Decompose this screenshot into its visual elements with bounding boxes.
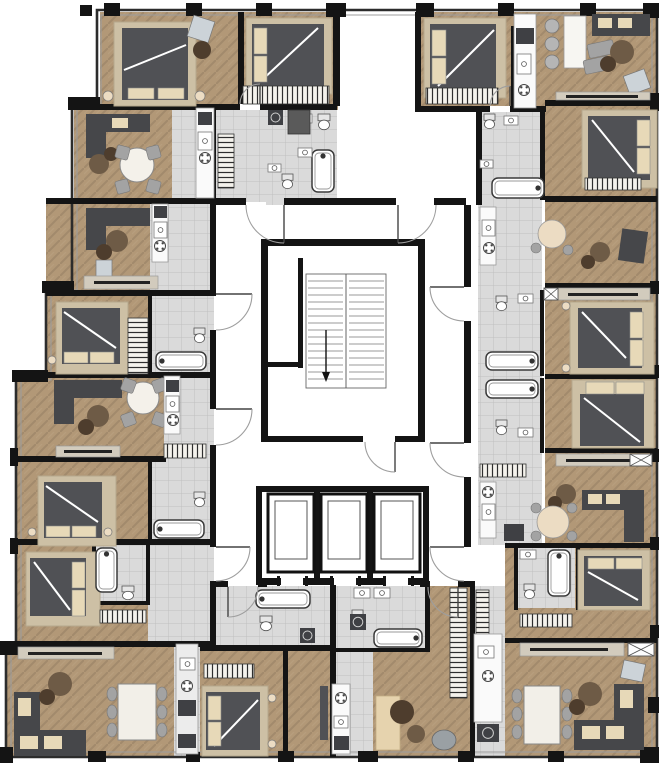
toilet-bowl (318, 120, 329, 130)
bar-stool (545, 19, 559, 33)
wall (216, 198, 246, 205)
chair (512, 725, 522, 739)
wall (464, 205, 471, 287)
pillow (637, 120, 650, 146)
door-gap (240, 104, 260, 110)
sink (268, 164, 281, 172)
wall (545, 100, 657, 106)
door-sill-tick (358, 576, 361, 586)
pouf (193, 41, 211, 59)
tub-faucet (320, 153, 325, 158)
tub-faucet (413, 635, 418, 640)
tub-faucet (157, 526, 162, 531)
sofa-cushion (588, 494, 602, 504)
burner (169, 416, 171, 418)
sofa-cushion (606, 494, 620, 504)
pillow (254, 56, 267, 82)
wall (545, 196, 657, 202)
chair (531, 531, 541, 541)
pouf (390, 700, 414, 724)
sink (480, 160, 493, 168)
toilet-bowl (194, 498, 204, 507)
pillar (256, 3, 272, 16)
bar-stool (545, 37, 559, 51)
stove (519, 85, 530, 96)
door-sill-tick (305, 576, 308, 586)
sink (504, 116, 518, 125)
elevator-door-gap (281, 578, 303, 585)
wall (46, 290, 216, 296)
burner (484, 672, 486, 674)
wardrobe (100, 610, 146, 623)
chair (107, 687, 117, 701)
kitchen-sink (198, 132, 212, 150)
burner (490, 494, 492, 496)
tub-faucet (556, 553, 561, 558)
burner (343, 694, 345, 696)
stove (483, 487, 494, 498)
sofa-cushion (112, 118, 128, 128)
bedside-table (28, 528, 36, 536)
wall (464, 321, 471, 443)
appliance (178, 700, 196, 716)
washer (350, 614, 366, 630)
sofa (86, 208, 106, 250)
pouf (96, 244, 112, 260)
door-sill-tick (411, 576, 414, 586)
wardrobe (128, 318, 148, 374)
wall (210, 445, 216, 547)
pillow (64, 352, 88, 363)
wardrobe (218, 134, 234, 188)
stove (182, 681, 193, 692)
door-sill-tick (383, 576, 386, 586)
kitchen-sink (154, 222, 167, 238)
wardrobe (426, 88, 498, 104)
pillar (68, 97, 100, 110)
core-wall (298, 258, 303, 368)
chair (531, 243, 541, 253)
floor-plan-canvas (0, 0, 665, 768)
bar-stool (545, 55, 559, 69)
burner (207, 160, 209, 162)
chair (562, 689, 572, 703)
chair (531, 503, 541, 513)
pillar (80, 5, 92, 16)
pillar (104, 3, 120, 16)
pillow (72, 562, 85, 588)
sink (298, 148, 312, 157)
sink (518, 428, 533, 437)
wardrobe (164, 444, 206, 458)
pillow (588, 558, 614, 569)
burner (337, 700, 339, 702)
wall (434, 198, 466, 205)
appliance (154, 206, 167, 218)
wall (505, 543, 657, 548)
burner (484, 494, 486, 496)
stove (168, 415, 179, 426)
toilet-bowl (194, 334, 204, 343)
wall (545, 448, 657, 453)
chair (563, 245, 573, 255)
pillow (128, 88, 154, 99)
pillow (630, 312, 643, 338)
kitchen-sink (166, 396, 179, 412)
wall (146, 541, 150, 605)
burner (189, 682, 191, 684)
wardrobe (204, 664, 254, 678)
core-wall (261, 239, 268, 442)
wall (200, 645, 335, 651)
chair (512, 689, 522, 703)
door-gap (490, 106, 510, 112)
toilet-bowl (524, 590, 534, 599)
pouf (581, 255, 595, 269)
wall (545, 283, 657, 288)
pillar (648, 697, 659, 713)
elevator-door-gap (386, 578, 408, 585)
burner (175, 416, 177, 418)
pillow (586, 382, 614, 394)
burner (183, 688, 185, 690)
kitchen-sink (482, 220, 495, 236)
sofa (86, 114, 106, 158)
core-wall (263, 366, 268, 406)
wall (476, 106, 482, 205)
burner (156, 248, 158, 250)
pillow (432, 30, 446, 56)
tv (64, 450, 112, 453)
toilet-bowl (282, 180, 292, 189)
wall (545, 374, 657, 379)
sink (518, 294, 533, 303)
burner (207, 154, 209, 156)
pillar (498, 3, 514, 16)
wall (214, 581, 228, 587)
burner (183, 682, 185, 684)
appliance (516, 28, 534, 44)
burner (520, 92, 522, 94)
pillow (616, 382, 644, 394)
stove (336, 693, 347, 704)
pouf (569, 699, 585, 715)
bedside-table (268, 740, 276, 748)
core-wall (261, 436, 363, 442)
burner (526, 92, 528, 94)
pillow (90, 352, 114, 363)
burner (491, 250, 493, 252)
toilet-bowl (122, 591, 133, 599)
appliance (334, 736, 349, 750)
wall (148, 460, 152, 541)
burner (485, 244, 487, 246)
sofa-cushion (18, 698, 31, 716)
kitchen-sink (180, 658, 195, 670)
bedside-table (103, 91, 113, 101)
sofa-cushion (44, 736, 62, 749)
wall (333, 12, 340, 106)
appliance (178, 734, 196, 748)
lounge-chair (618, 228, 648, 263)
burner (526, 86, 528, 88)
bench (585, 178, 641, 190)
wall (415, 12, 421, 112)
tv (28, 652, 102, 655)
dining-table (118, 684, 156, 740)
pillar (186, 3, 202, 16)
chair (157, 723, 167, 737)
stove (200, 153, 211, 164)
sink (374, 588, 390, 598)
dining-table (538, 220, 566, 248)
chair (567, 503, 577, 513)
stove (483, 671, 494, 682)
bedside-table (48, 356, 56, 364)
wall (210, 330, 216, 409)
sofa-cushion (606, 726, 624, 739)
core-wall (395, 436, 425, 442)
core-wall (418, 239, 425, 442)
wall (284, 198, 396, 205)
dining-table (524, 686, 560, 744)
washer (268, 110, 283, 125)
pillow (208, 722, 221, 746)
elevator-wall (256, 486, 262, 585)
elevator-wall (256, 486, 429, 492)
burner (484, 488, 486, 490)
pillow (630, 340, 643, 366)
pouf (407, 725, 425, 743)
tv (566, 95, 638, 98)
kitchen-sink (482, 504, 495, 520)
pouf (78, 419, 94, 435)
pillar (0, 641, 18, 655)
wall (283, 650, 288, 757)
pillow (254, 28, 267, 54)
wall (505, 638, 657, 643)
sink (354, 588, 370, 598)
sofa (624, 490, 644, 542)
washer (300, 628, 315, 643)
burner (490, 678, 492, 680)
burner (491, 244, 493, 246)
wall (46, 198, 216, 204)
chair (107, 723, 117, 737)
wall (514, 546, 518, 610)
tv (568, 293, 638, 296)
wall (425, 581, 430, 652)
bedside-table (104, 528, 112, 536)
floor-plan (0, 0, 665, 768)
sofa (54, 380, 74, 424)
pillow (72, 590, 85, 616)
pillow (432, 58, 446, 84)
elevator-door-gap (334, 578, 356, 585)
wardrobe (480, 464, 526, 477)
burner (490, 672, 492, 674)
wall (336, 648, 425, 652)
tv (566, 459, 636, 462)
appliance (198, 112, 212, 125)
tub-faucet (159, 358, 164, 363)
chair (512, 707, 522, 721)
appliance (166, 380, 179, 392)
toilet-bowl (496, 426, 506, 435)
washer (477, 724, 499, 742)
pillow (72, 526, 96, 537)
shower (288, 110, 310, 134)
burner (485, 250, 487, 252)
pillow (208, 696, 221, 720)
chair (157, 687, 167, 701)
desk (320, 686, 328, 740)
sofa-cushion (20, 736, 38, 749)
stove (155, 241, 166, 252)
hall-left-4 (148, 541, 214, 643)
kitchen-sink (517, 54, 531, 74)
bedside-table (195, 91, 205, 101)
burner (337, 694, 339, 696)
bedside-table (562, 302, 570, 310)
burner (156, 242, 158, 244)
pillow (616, 558, 642, 569)
sofa-cushion (618, 18, 632, 28)
pillar (0, 747, 13, 763)
wardrobe (243, 86, 329, 104)
sofa-cushion (620, 690, 633, 708)
burner (162, 242, 164, 244)
wall (92, 601, 150, 605)
chair (107, 705, 117, 719)
pillow (46, 526, 70, 537)
pouf (600, 56, 616, 72)
burner (162, 248, 164, 250)
pillar (88, 751, 106, 762)
bedside-table (562, 364, 570, 372)
kitchen-sink (334, 716, 348, 728)
dining-table (537, 506, 569, 538)
wall (540, 378, 544, 453)
burner (169, 422, 171, 424)
wall (148, 294, 152, 376)
burner (484, 678, 486, 680)
pillar (650, 625, 659, 638)
sofa-cushion (598, 18, 612, 28)
tub-faucet (104, 551, 109, 556)
tv (94, 281, 150, 284)
toilet-bowl (260, 622, 271, 631)
pouf (39, 689, 55, 705)
tub-faucet (535, 185, 540, 190)
toilet-bowl (484, 120, 494, 129)
elevator-wall (423, 486, 429, 585)
wall (210, 581, 216, 647)
wall (540, 290, 544, 376)
tub-faucet (529, 386, 534, 391)
stove (484, 243, 495, 254)
chair (562, 725, 572, 739)
door-sill-tick (277, 576, 280, 586)
burner (175, 422, 177, 424)
pillar (358, 751, 378, 762)
tub-faucet (259, 596, 264, 601)
burner (201, 154, 203, 156)
chair (567, 531, 577, 541)
burner (201, 160, 203, 162)
tub-faucet (529, 358, 534, 363)
chair (157, 705, 167, 719)
armchair (96, 260, 112, 278)
kitchen-sink (478, 646, 494, 658)
lounge-chair (432, 730, 456, 750)
tv (530, 648, 608, 651)
toilet-bowl (496, 302, 506, 311)
wardrobe (520, 614, 572, 627)
sofa-cushion (582, 726, 600, 739)
sink (520, 550, 536, 559)
appliance (504, 524, 524, 541)
pillow (637, 148, 650, 174)
burner (189, 688, 191, 690)
bar-table (564, 16, 586, 68)
burner (490, 488, 492, 490)
burner (343, 700, 345, 702)
door-sill-tick (330, 576, 333, 586)
bedside-table (268, 694, 276, 702)
wall (464, 477, 471, 547)
pillow (158, 88, 184, 99)
burner (520, 86, 522, 88)
wall (458, 581, 473, 587)
pillar (548, 751, 564, 762)
